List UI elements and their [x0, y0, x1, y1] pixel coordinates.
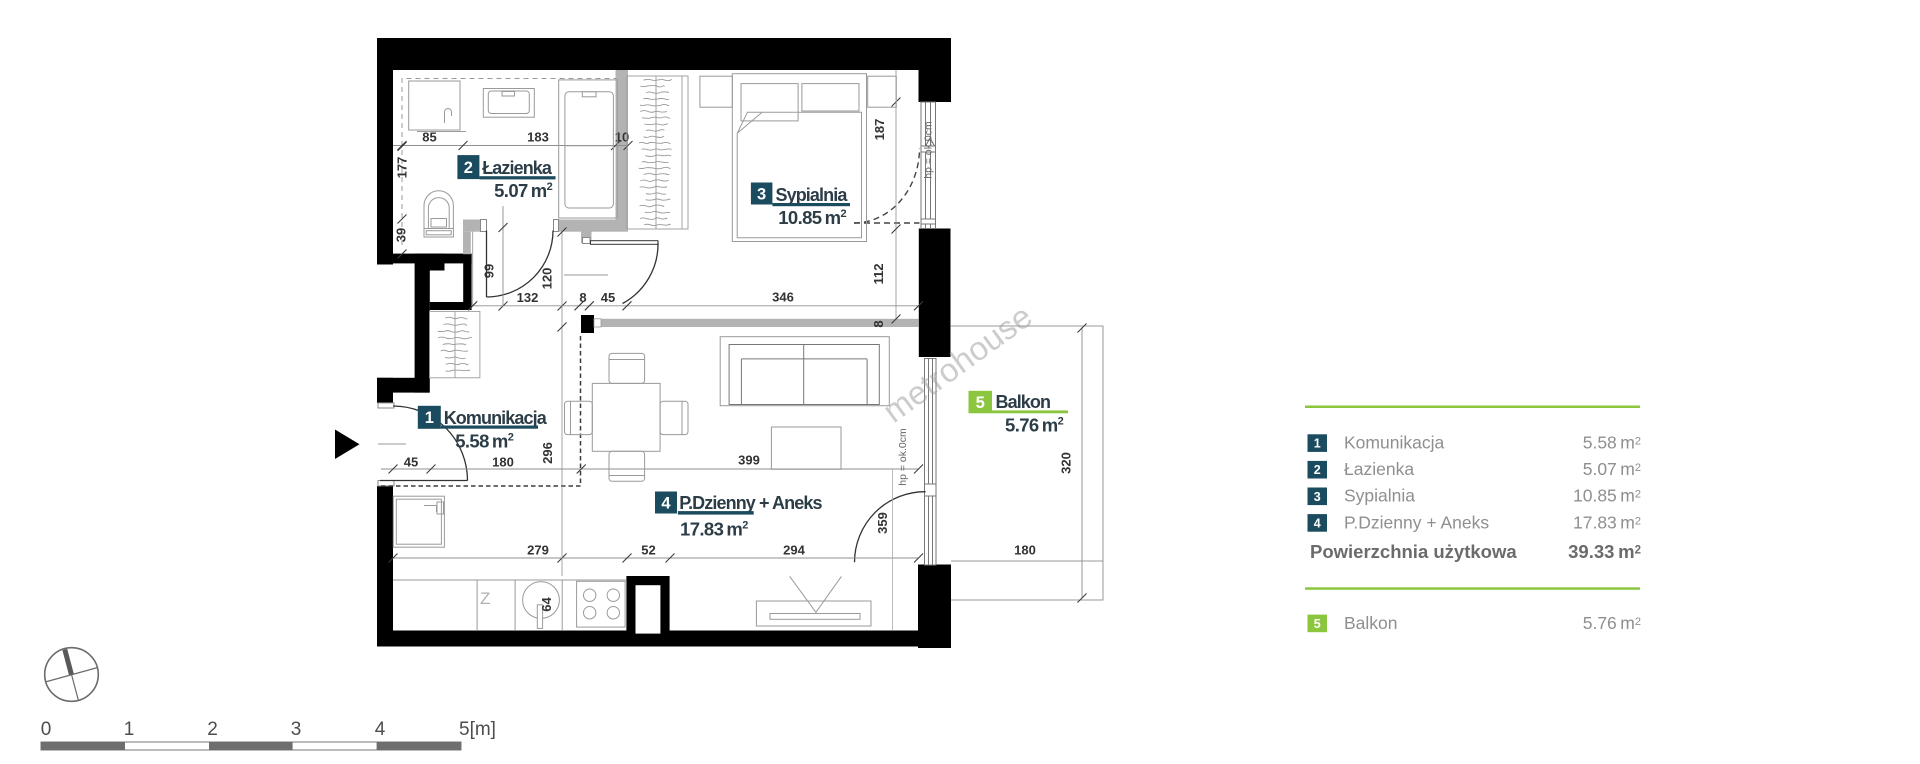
- svg-text:45: 45: [404, 455, 418, 470]
- svg-text:112: 112: [871, 264, 886, 285]
- svg-text:4: 4: [375, 719, 386, 740]
- svg-text:177: 177: [395, 157, 410, 179]
- svg-text:180: 180: [492, 455, 514, 470]
- svg-text:132: 132: [517, 290, 539, 305]
- svg-text:17.83 m2: 17.83 m2: [680, 518, 748, 539]
- svg-text:2: 2: [464, 159, 473, 177]
- svg-text:320: 320: [1059, 452, 1074, 474]
- svg-text:180: 180: [1014, 543, 1036, 558]
- svg-text:Komunikacja: Komunikacja: [1344, 433, 1444, 453]
- svg-text:5.58 m2: 5.58 m2: [455, 431, 514, 452]
- svg-text:5: 5: [1314, 617, 1321, 631]
- svg-text:3: 3: [757, 185, 766, 203]
- svg-text:0: 0: [41, 719, 52, 740]
- svg-text:64: 64: [539, 597, 554, 612]
- svg-text:296: 296: [540, 442, 555, 464]
- svg-text:1: 1: [425, 409, 434, 427]
- svg-text:5.07 m2: 5.07 m2: [1583, 459, 1641, 479]
- svg-text:hp = ok.0cm: hp = ok.0cm: [897, 428, 909, 486]
- svg-text:52: 52: [641, 543, 655, 558]
- svg-text:Balkon: Balkon: [1344, 613, 1398, 633]
- svg-text:5.76 m2: 5.76 m2: [1583, 613, 1641, 633]
- svg-text:45: 45: [601, 290, 615, 305]
- svg-text:187: 187: [872, 119, 887, 141]
- svg-text:5.07 m2: 5.07 m2: [494, 180, 553, 201]
- svg-text:5.58 m2: 5.58 m2: [1583, 433, 1641, 453]
- svg-text:120: 120: [540, 268, 555, 290]
- svg-text:5[m]: 5[m]: [459, 719, 496, 740]
- svg-text:P.Dzienny + Aneks: P.Dzienny + Aneks: [1344, 512, 1489, 532]
- svg-text:39: 39: [394, 228, 409, 242]
- svg-text:Z: Z: [480, 589, 490, 608]
- svg-text:hp = ok.0cm: hp = ok.0cm: [923, 121, 935, 179]
- svg-text:2: 2: [207, 719, 218, 740]
- svg-text:10.85 m2: 10.85 m2: [1573, 486, 1641, 506]
- svg-text:346: 346: [772, 290, 794, 305]
- svg-text:2: 2: [1314, 463, 1321, 477]
- svg-text:Łazienka: Łazienka: [482, 158, 553, 178]
- svg-text:5: 5: [976, 394, 985, 412]
- svg-text:Łazienka: Łazienka: [1344, 459, 1414, 479]
- svg-text:359: 359: [875, 512, 890, 534]
- svg-text:4: 4: [1314, 516, 1321, 530]
- svg-text:Balkon: Balkon: [996, 392, 1051, 412]
- svg-text:Komunikacja: Komunikacja: [444, 408, 548, 428]
- svg-text:279: 279: [527, 543, 549, 558]
- svg-text:183: 183: [527, 130, 549, 145]
- svg-text:399: 399: [738, 453, 760, 468]
- svg-text:99: 99: [482, 264, 497, 278]
- svg-text:3: 3: [291, 719, 302, 740]
- svg-text:Sypialnia: Sypialnia: [776, 185, 849, 205]
- svg-text:294: 294: [783, 543, 805, 558]
- svg-text:17.83 m2: 17.83 m2: [1573, 512, 1641, 532]
- svg-text:Powierzchnia użytkowa: Powierzchnia użytkowa: [1310, 541, 1517, 562]
- svg-text:3: 3: [1314, 490, 1321, 504]
- svg-text:10.85 m2: 10.85 m2: [778, 207, 846, 228]
- svg-text:Sypialnia: Sypialnia: [1344, 486, 1415, 506]
- svg-text:P.Dzienny + Aneks: P.Dzienny + Aneks: [679, 493, 822, 513]
- svg-text:5.76 m2: 5.76 m2: [1005, 415, 1064, 436]
- svg-text:39.33 m2: 39.33 m2: [1568, 541, 1641, 562]
- svg-text:4: 4: [661, 494, 671, 512]
- svg-text:1: 1: [124, 719, 135, 740]
- svg-text:8: 8: [579, 290, 586, 305]
- svg-text:8: 8: [871, 320, 886, 327]
- svg-text:1: 1: [1314, 437, 1321, 451]
